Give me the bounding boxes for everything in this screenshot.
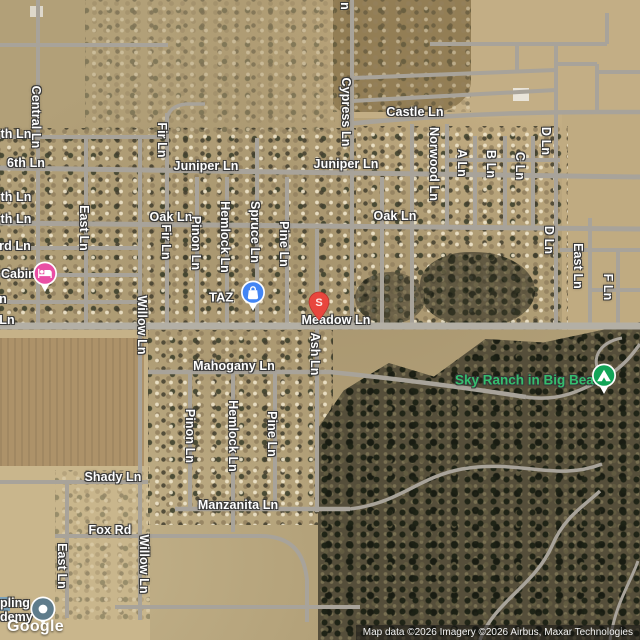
street-label: Pine Ln <box>277 221 291 267</box>
street-label: Shady Ln <box>84 470 141 484</box>
street-label: Juniper Ln <box>314 157 379 171</box>
street-label: Oak Ln <box>150 210 193 224</box>
street-label: Pinon Ln <box>189 216 203 270</box>
street-label: East Ln <box>571 243 585 289</box>
street-label: Ash Ln <box>308 333 322 376</box>
street-label: East Ln <box>55 543 69 589</box>
street-label: F Ln <box>601 274 615 301</box>
street-label: Willow Ln <box>137 534 151 593</box>
street-label: th Ln <box>0 127 31 141</box>
street-label: Juniper Ln <box>174 159 239 173</box>
street-label: Spruce Ln <box>248 201 262 263</box>
street-label: rd Ln <box>0 239 31 253</box>
map-canvas[interactable]: Castle LnJuniper LnJuniper LnOak LnOak L… <box>0 0 640 640</box>
street-label: Fir Ln <box>155 122 169 157</box>
street-label: East Ln <box>77 205 91 251</box>
campground-marker[interactable] <box>591 363 617 400</box>
street-label: Ln <box>0 313 15 327</box>
street-label: Fox Rd <box>89 523 132 537</box>
street-label: th Ln <box>0 190 31 204</box>
street-label: 6th Ln <box>7 156 45 170</box>
street-label: Fir Ln <box>159 224 173 259</box>
street-label: Norwood Ln <box>427 127 441 201</box>
street-label: Pine Ln <box>265 411 279 457</box>
street-label: th Ln <box>0 212 31 226</box>
street-label: Mahogany Ln <box>193 359 275 373</box>
google-logo[interactable]: Google <box>7 618 64 636</box>
street-label: Oak Ln <box>374 209 417 223</box>
street-label: n <box>338 2 352 10</box>
lodging-marker[interactable] <box>32 261 58 298</box>
cabin-label[interactable]: Cabin <box>1 267 36 281</box>
map-attribution: Map data ©2026 Imagery ©2026 Airbus, Max… <box>356 625 640 640</box>
street-label: A Ln <box>455 149 469 177</box>
street-label: D Ln <box>539 127 553 155</box>
search-result-pin[interactable]: S <box>308 291 330 326</box>
street-label: Manzanita Ln <box>198 498 278 512</box>
street-label: B Ln <box>484 150 498 178</box>
taz-label[interactable]: TAZ <box>209 290 233 305</box>
shopping-marker-taz[interactable] <box>240 280 266 317</box>
pin-letter: S <box>315 297 322 309</box>
street-label: Cypress Ln <box>339 77 353 146</box>
street-label: Hemlock Ln <box>226 400 240 472</box>
street-label: Pinon Ln <box>183 409 197 463</box>
street-label: D Ln <box>542 226 556 254</box>
street-label: n <box>0 292 7 306</box>
street-label: Willow Ln <box>135 295 149 354</box>
sky-ranch-label[interactable]: Sky Ranch in Big Bear <box>455 373 599 388</box>
academy-label-line1[interactable]: pling <box>0 596 30 610</box>
street-label: C Ln <box>513 152 527 180</box>
street-label: Castle Ln <box>386 105 443 119</box>
street-label: Hemlock Ln <box>218 201 232 273</box>
dot-icon <box>39 605 48 614</box>
street-label: Central Ln <box>29 86 43 149</box>
